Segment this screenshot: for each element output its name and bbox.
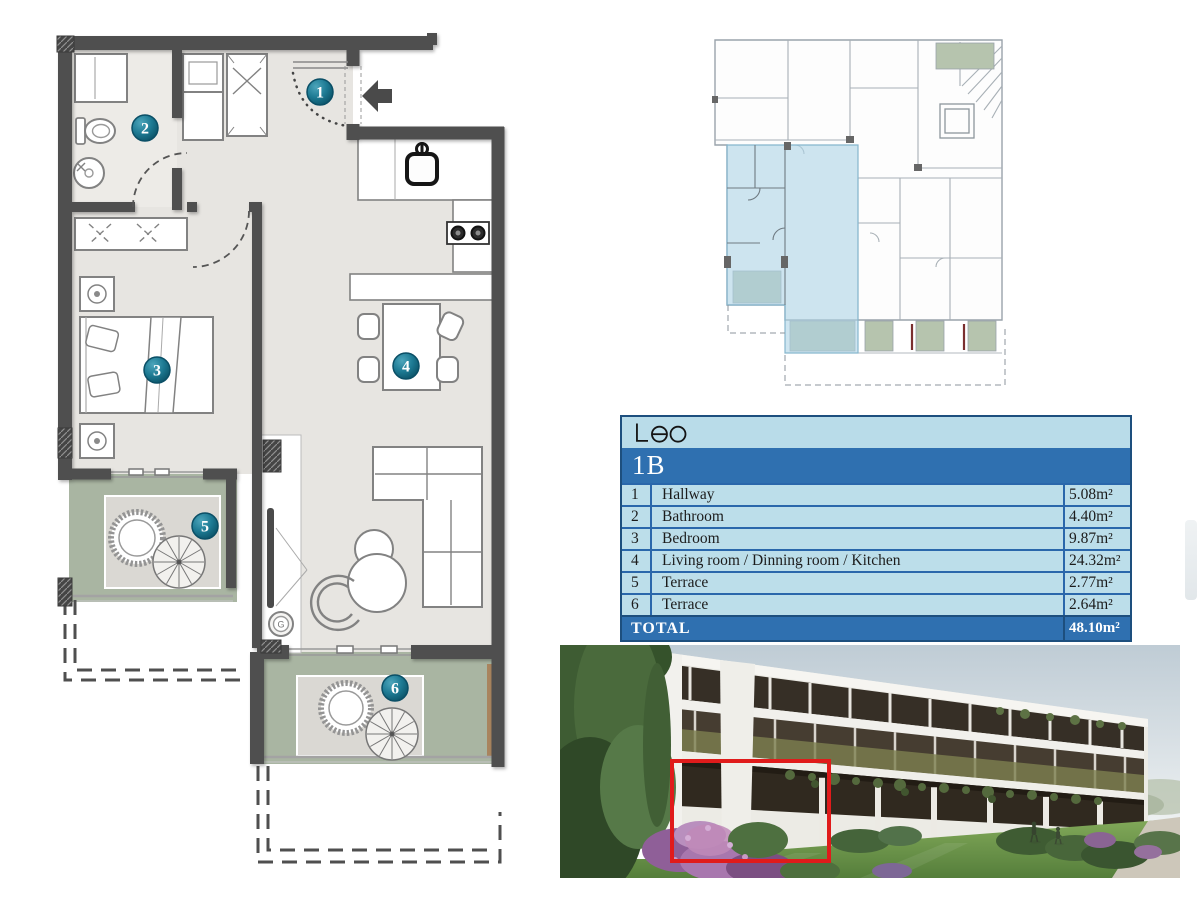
logo-row xyxy=(622,417,1130,448)
room-area: 4.40m² xyxy=(1063,507,1130,527)
room-name: Bathroom xyxy=(652,507,1063,527)
svg-text:1: 1 xyxy=(316,85,324,102)
key-plan-unit-highlight xyxy=(727,145,858,353)
key-plan xyxy=(700,28,1012,390)
total-area: 48.10m² xyxy=(1063,617,1130,640)
nightstand xyxy=(80,424,114,458)
stove-icon xyxy=(447,222,489,244)
room-name: Hallway xyxy=(652,485,1063,505)
boiler-label: G xyxy=(277,620,284,630)
edge-artifact xyxy=(1185,520,1197,600)
brochure-page: 1 2 3 4 5 6 G xyxy=(0,0,1200,900)
room-area: 2.77m² xyxy=(1063,573,1130,593)
table-row-4: 4 Living room / Dinning room / Kitchen 2… xyxy=(622,549,1130,571)
table-row-5: 5 Terrace 2.77m² xyxy=(622,571,1130,593)
parasol-icon xyxy=(366,708,418,760)
svg-text:6: 6 xyxy=(391,681,399,698)
tv-icon xyxy=(267,508,274,608)
room-badge-3: 3 xyxy=(144,357,170,383)
svg-text:3: 3 xyxy=(153,363,161,380)
toilet-icon xyxy=(76,118,115,144)
svg-text:4: 4 xyxy=(402,359,410,376)
svg-text:2: 2 xyxy=(141,121,149,138)
closet xyxy=(227,54,267,136)
coffee-table-icon xyxy=(348,554,406,612)
table-total-row: TOTAL 48.10m² xyxy=(622,615,1130,640)
leo-logo xyxy=(631,418,695,448)
room-badge-1: 1 xyxy=(307,79,333,105)
building-photo xyxy=(560,645,1180,878)
total-label: TOTAL xyxy=(622,617,1063,640)
table-row-1: 1 Hallway 5.08m² xyxy=(622,483,1130,505)
room-area: 9.87m² xyxy=(1063,529,1130,549)
room-badge-5: 5 xyxy=(192,513,218,539)
row-number: 6 xyxy=(622,595,652,615)
parasol-icon xyxy=(153,536,205,588)
room-name: Living room / Dinning room / Kitchen xyxy=(652,551,1063,571)
entry-arrow-icon xyxy=(362,80,392,112)
table-row-3: 3 Bedroom 9.87m² xyxy=(622,527,1130,549)
sink-icon xyxy=(74,158,104,188)
unit-label: 1B xyxy=(622,448,1130,483)
room-name: Bedroom xyxy=(652,529,1063,549)
hall-cabinet xyxy=(183,54,223,140)
room-name: Terrace xyxy=(652,573,1063,593)
room-area: 5.08m² xyxy=(1063,485,1130,505)
row-number: 5 xyxy=(622,573,652,593)
row-number: 4 xyxy=(622,551,652,571)
room-badge-2: 2 xyxy=(132,115,158,141)
terrace-table-icon xyxy=(321,683,371,733)
room-area: 2.64m² xyxy=(1063,595,1130,615)
wardrobe xyxy=(75,218,187,250)
room-area: 24.32m² xyxy=(1063,551,1130,571)
floor-plan: 1 2 3 4 5 6 G xyxy=(55,30,510,880)
table-row-2: 2 Bathroom 4.40m² xyxy=(622,505,1130,527)
nightstand xyxy=(80,277,114,311)
room-badge-4: 4 xyxy=(393,353,419,379)
unit-area-table: 1B 1 Hallway 5.08m² 2 Bathroom 4.40m² 3 … xyxy=(620,415,1132,642)
row-number: 3 xyxy=(622,529,652,549)
row-number: 2 xyxy=(622,507,652,527)
row-number: 1 xyxy=(622,485,652,505)
svg-text:5: 5 xyxy=(201,519,209,536)
washing-machine-icon xyxy=(75,54,127,102)
room-name: Terrace xyxy=(652,595,1063,615)
table-row-6: 6 Terrace 2.64m² xyxy=(622,593,1130,615)
room-badge-6: 6 xyxy=(382,675,408,701)
